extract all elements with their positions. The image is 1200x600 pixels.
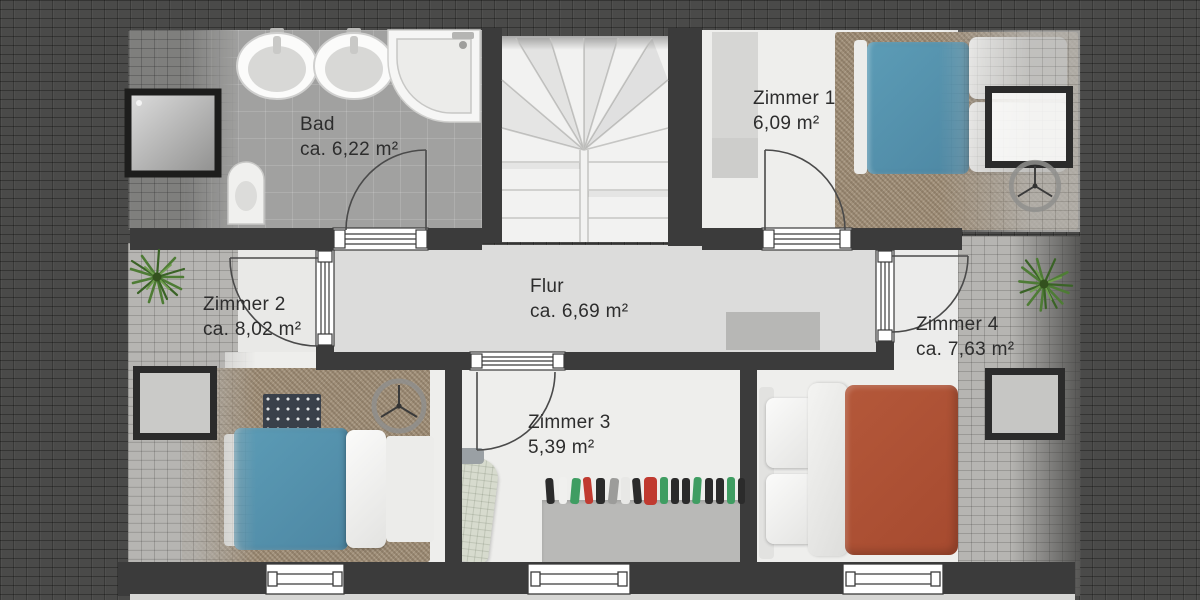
label-flur: Flur ca. 6,69 m² [530, 274, 628, 324]
toilet [228, 162, 264, 224]
floor-plan: Bad ca. 6,22 m² Zimmer 1 6,09 m² Zimmer … [0, 0, 1200, 600]
window-zimmer3 [528, 564, 630, 594]
room-name: Flur [530, 274, 628, 299]
washbasin-right-icon [314, 28, 394, 99]
room-name: Bad [300, 112, 398, 137]
ceiling-fan-zimmer1-icon [1011, 162, 1059, 210]
room-area: ca. 6,69 m² [530, 299, 628, 324]
room-area: ca. 6,22 m² [300, 137, 398, 162]
label-bad: Bad ca. 6,22 m² [300, 112, 398, 162]
room-name: Zimmer 1 [753, 86, 836, 111]
door-zimmer1 [762, 150, 852, 250]
room-name: Zimmer 2 [203, 292, 301, 317]
room-area: 5,39 m² [528, 435, 611, 460]
corner-bathtub [388, 30, 480, 122]
label-zimmer4: Zimmer 4 ca. 7,63 m² [916, 312, 1014, 362]
shower [128, 92, 218, 174]
label-zimmer2: Zimmer 2 ca. 8,02 m² [203, 292, 301, 342]
hanging-clothes [545, 477, 745, 505]
door-bad [333, 150, 428, 250]
plant-left-icon [131, 250, 184, 303]
washbasin-left-icon [237, 28, 317, 99]
label-zimmer3: Zimmer 3 5,39 m² [528, 410, 611, 460]
room-name: Zimmer 4 [916, 312, 1014, 337]
room-area: ca. 8,02 m² [203, 317, 301, 342]
label-zimmer1: Zimmer 1 6,09 m² [753, 86, 836, 136]
staircase [502, 36, 668, 242]
window-zimmer2 [266, 564, 344, 594]
room-name: Zimmer 3 [528, 410, 611, 435]
room-area: ca. 7,63 m² [916, 337, 1014, 362]
room-area: 6,09 m² [753, 111, 836, 136]
window-zimmer4 [843, 564, 943, 594]
ceiling-fan-zimmer2-icon [374, 381, 424, 431]
plant-right-icon [1011, 250, 1079, 318]
